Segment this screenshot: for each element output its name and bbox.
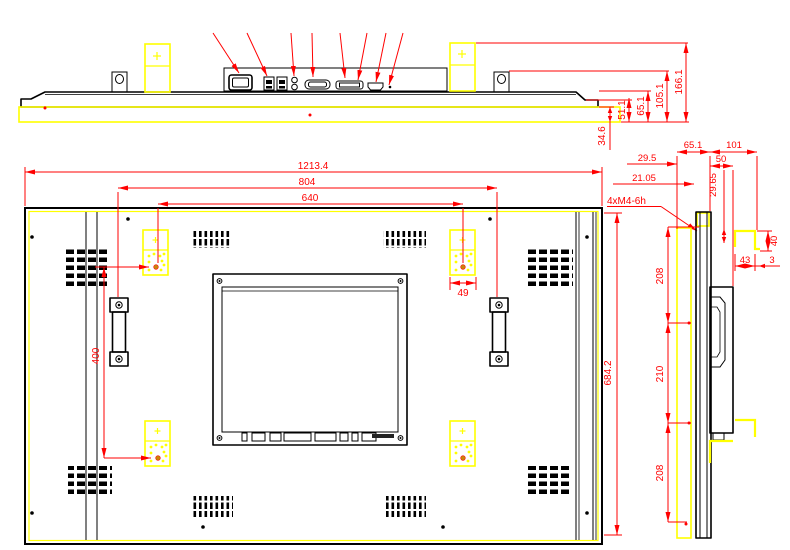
mount-bracket-bottom-2 [710, 441, 733, 463]
side-module [710, 287, 733, 440]
dim-1213-4: 1213.4 [298, 161, 329, 172]
dim-400: 400 [91, 347, 102, 364]
io-connectors [229, 75, 391, 90]
dim-51-1: 51.1 [617, 100, 628, 120]
back-view: 1213.4 804 640 400 49 684.2 4xM4-6h [25, 161, 697, 544]
audio-jack-2 [292, 84, 298, 90]
terminal-connector-1 [264, 77, 274, 90]
back-screws [30, 217, 589, 529]
ref-dot [309, 114, 312, 117]
front-glass-strip [19, 107, 620, 122]
mount-pad-top-right [450, 43, 475, 91]
dim-29-65: 29.65 [708, 173, 719, 197]
audio-jack-1 [292, 77, 298, 83]
dim-804: 804 [299, 177, 316, 188]
module-connector-row [242, 433, 376, 441]
terminal-connector-2 [277, 77, 287, 90]
dim-43: 43 [740, 255, 751, 266]
side-highlight-strip [677, 228, 691, 538]
mount-pad [450, 421, 475, 466]
dim-34-6: 34.6 [597, 126, 608, 146]
io-recess [224, 68, 447, 91]
vent-grille-vertical [193, 231, 232, 248]
connector-leader-lines [213, 33, 403, 85]
mount-pad-top-left [145, 44, 170, 92]
back-highlight-frame [29, 212, 598, 541]
top-view: 166.1 105.1 65.1 51.1 34.6 [19, 33, 689, 150]
dim-49: 49 [457, 288, 469, 299]
dim-21-05: 21.05 [632, 173, 656, 184]
led-dot [389, 86, 392, 89]
dim-side-65-1: 65.1 [684, 140, 703, 151]
dim-65-1: 65.1 [636, 96, 647, 116]
mount-pad [145, 421, 170, 466]
top-view-dimensions: 166.1 105.1 65.1 51.1 34.6 [476, 43, 689, 150]
vent-grille-vertical [385, 496, 426, 517]
dim-640: 640 [302, 193, 319, 204]
dvi-connector-inner [340, 83, 360, 87]
dim-3: 3 [769, 255, 774, 266]
dim-29-5: 29.5 [638, 153, 657, 164]
dim-684-2: 684.2 [603, 360, 614, 385]
handle-left [110, 298, 128, 366]
dim-210: 210 [655, 365, 666, 382]
vga-connector-inner [309, 82, 327, 87]
dvi-connector [336, 81, 363, 89]
dim-208-bottom: 208 [655, 464, 666, 481]
vent-grille-horizontal [68, 466, 112, 496]
dim-side-101: 101 [726, 140, 742, 151]
side-panel [696, 212, 711, 538]
dim-105-1: 105.1 [655, 83, 666, 108]
hdmi-connector [368, 83, 383, 90]
vent-grille-horizontal [64, 249, 110, 288]
ref-dot [44, 107, 47, 110]
vent-grille-vertical [192, 496, 233, 517]
dim-40: 40 [769, 236, 780, 247]
mount-bracket-top [735, 231, 760, 249]
vent-grille-horizontal [527, 466, 571, 496]
mount-ear-right [494, 72, 509, 92]
dim-50: 50 [716, 154, 727, 165]
mount-bracket-bottom [735, 420, 755, 437]
handle-right [490, 298, 508, 366]
embedded-module [213, 274, 407, 445]
power-connector-inner [233, 78, 249, 87]
module-label-strip [372, 434, 394, 438]
mount-ear-left [112, 72, 127, 92]
vent-grille-horizontal [527, 249, 573, 288]
thread-note: 4xM4-6h [607, 196, 646, 207]
mount-pad [143, 230, 168, 275]
drawing-sheet: 166.1 105.1 65.1 51.1 34.6 [0, 0, 790, 550]
dim-208-top: 208 [655, 267, 666, 284]
drawing-canvas: 166.1 105.1 65.1 51.1 34.6 [0, 0, 790, 550]
dim-166-1: 166.1 [674, 69, 685, 94]
vent-grille-vertical [383, 231, 426, 248]
